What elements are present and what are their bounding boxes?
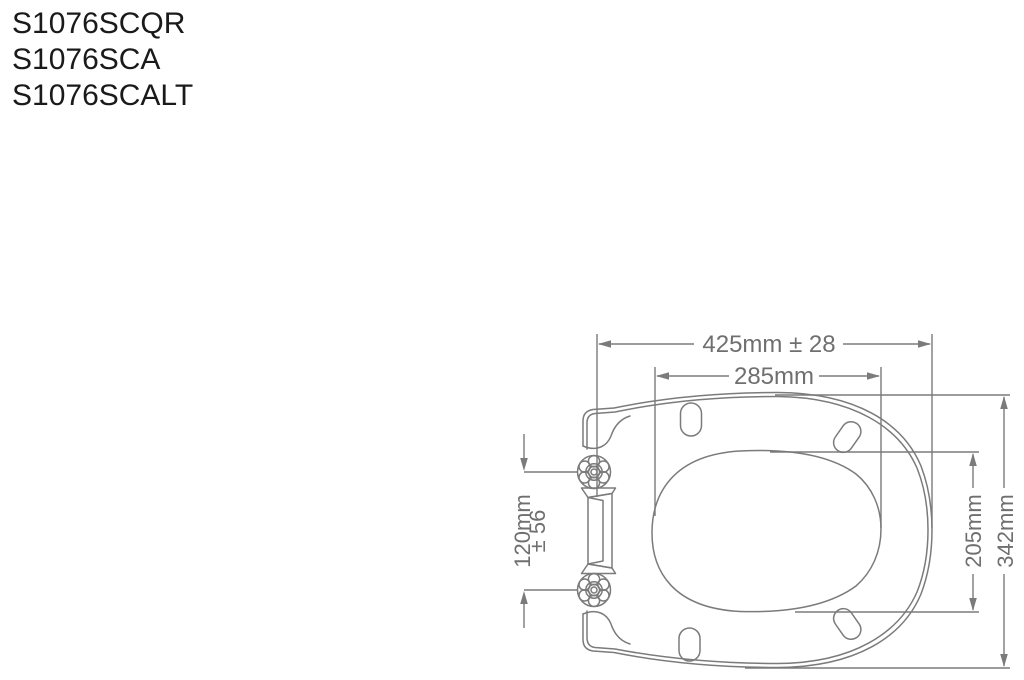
hinge-flap-curve-top xyxy=(583,416,630,448)
arrow-285-right xyxy=(867,372,880,380)
bumper-bottom-left xyxy=(679,628,700,661)
arrow-285-left xyxy=(656,372,669,380)
seat-opening xyxy=(652,450,881,611)
label-inner-width: 285mm xyxy=(734,363,814,390)
label-hinge-spacing-tolerance: ± 56 xyxy=(525,510,550,553)
label-inner-depth: 205mm xyxy=(961,494,986,567)
label-overall-width: 425mm ± 28 xyxy=(702,331,835,358)
bumper-bottom-right xyxy=(830,605,865,643)
hinge-bar-joint-bottom xyxy=(582,564,616,574)
bumper-top-left xyxy=(681,403,702,436)
arrow-205-top xyxy=(969,453,977,466)
seat-outline-outer xyxy=(583,393,932,668)
arrow-425-right xyxy=(918,340,931,348)
arrow-120-top xyxy=(520,458,528,471)
arrow-205-bottom xyxy=(969,598,977,611)
seat-drawing xyxy=(578,393,933,668)
arrow-342-top xyxy=(1000,396,1008,409)
arrow-425-left xyxy=(598,340,611,348)
hinge-bottom xyxy=(578,574,611,607)
toilet-seat-diagram: 425mm ± 28 285mm 120mm ± 56 205mm 342mm xyxy=(0,0,1024,680)
bumper-top-right xyxy=(830,418,865,456)
hinge-bar-joint-top xyxy=(582,488,616,498)
hinge-flap-curve-bottom xyxy=(583,612,630,644)
hinge-top xyxy=(578,456,611,489)
arrow-342-bottom xyxy=(1000,654,1008,667)
hinge-bar-bevel xyxy=(588,498,603,565)
hinge-bar xyxy=(588,494,612,569)
label-overall-depth: 342mm xyxy=(993,494,1018,567)
dimension-labels: 425mm ± 28 285mm 120mm ± 56 205mm 342mm xyxy=(510,331,1018,568)
arrow-120-bottom xyxy=(520,591,528,604)
technical-drawing-page: S1076SCQR S1076SCA S1076SCALT xyxy=(0,0,1024,680)
seat-outline-inner xyxy=(587,397,928,664)
